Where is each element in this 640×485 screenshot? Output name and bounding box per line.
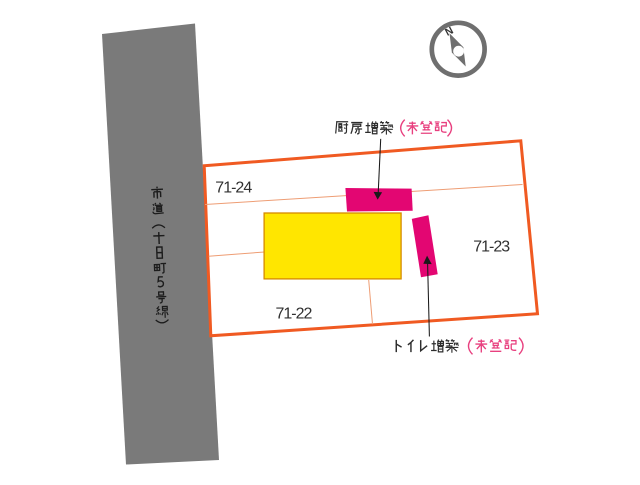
svg-text:71-22: 71-22: [276, 305, 313, 322]
svg-text:71-23: 71-23: [473, 238, 510, 255]
svg-text:71-24: 71-24: [215, 180, 252, 197]
